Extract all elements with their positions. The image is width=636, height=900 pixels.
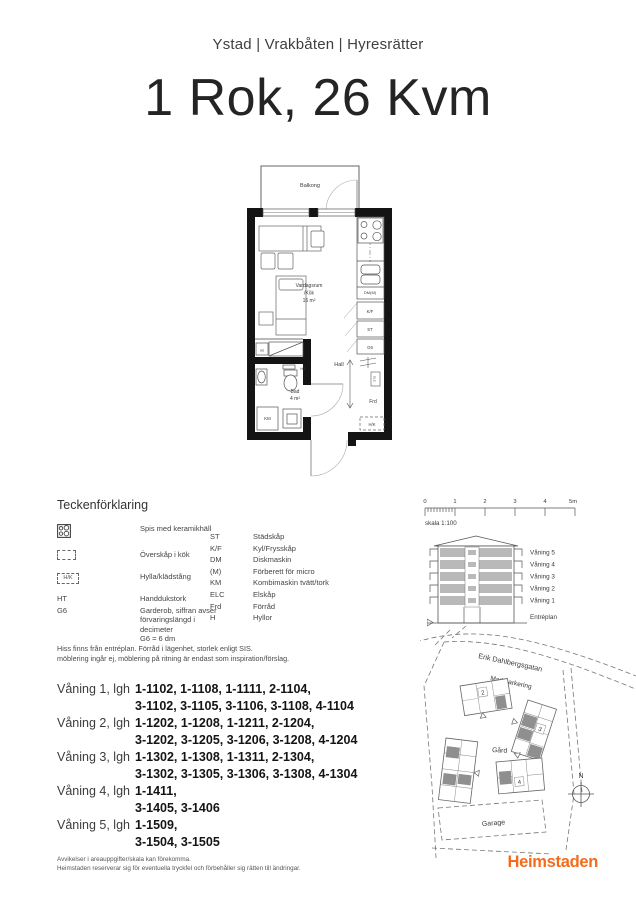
compass: N (568, 773, 594, 807)
legend-title: Teckenförklaring (57, 498, 148, 512)
bathroom-door-arc (311, 384, 343, 416)
legend-item-label: Spis med keramikhäll (140, 524, 211, 534)
balcony-label: Balkong (300, 183, 320, 189)
legend-item: H/K Hylla/klädstång (57, 572, 217, 584)
legend-abbr: DM (210, 554, 253, 566)
entry-door-arc (311, 440, 347, 476)
building-elevation: Våning 5 Våning 4 Våning 3 Våning 2 Våni… (427, 531, 597, 633)
legend-item: DMDiskmaskin (210, 554, 329, 566)
elevation-floor-label: Våning 2 (530, 585, 555, 593)
note-line: Hiss finns från entréplan. Förråd i läge… (57, 644, 289, 654)
legend-item: K/FKyl/Frysskåp (210, 543, 329, 555)
legend-item-label: Garderob, siffran avser förvaringslängd … (140, 606, 217, 644)
legend-item: HT Handdukstork (57, 594, 217, 604)
legend-abbr: G6 (57, 606, 140, 615)
legend-abbr: ELC (210, 589, 253, 601)
legend-item-label: Hylla/klädstång (140, 572, 191, 582)
hall-label: Hall (334, 362, 343, 368)
apartment-numbers: 3-1302, 3-1305, 3-1306, 3-1308, 4-1304 (135, 767, 357, 781)
floor-plan-drawing: Balkong (247, 162, 392, 484)
stove-icon (57, 524, 71, 538)
page-title: 1 Rok, 26 Kvm (0, 68, 636, 128)
hall-cabinets (344, 302, 384, 354)
apartment-numbers: 1-1509, (135, 818, 177, 832)
legend-item: KMKombimaskin tvätt/tork (210, 577, 329, 589)
apartment-numbers: 1-1302, 1-1308, 1-1311, 2-1304, (135, 750, 314, 764)
dishwasher-label: DM(M) (364, 290, 377, 295)
washer-label: KM (264, 416, 271, 421)
legend-item: HHyllor (210, 612, 329, 624)
floorplan-document: Ystad | Vrakbåten | Hyresrätter 1 Rok, 2… (0, 0, 636, 900)
floor-row: Våning 5, lgh 1-1509,3-1504, 3-1505 (57, 817, 357, 851)
disclaimer-line: Avvikelser i areauppgifter/skala kan för… (57, 856, 301, 865)
legend-abbr: (M) (210, 566, 253, 578)
heimstaden-logo: Heimstaden (507, 853, 598, 872)
kitchen-label: /Kök (304, 291, 315, 297)
apartment-numbers: 3-1504, 3-1505 (135, 835, 220, 849)
bathroom-area-label: 4 m² (290, 396, 300, 402)
notes: Hiss finns från entréplan. Förråd i läge… (57, 644, 289, 663)
legend-item: Spis med keramikhäll (57, 524, 217, 540)
scale-ruler (425, 508, 575, 516)
balcony-door-arc (326, 180, 357, 211)
shelf-label: H (260, 348, 263, 353)
legend-abbr: KM (210, 577, 253, 589)
legend-item: FrdFörråd (210, 601, 329, 613)
overhead-cabinet-icon (57, 550, 76, 560)
elevation-floor-label: Våning 5 (530, 549, 555, 557)
floor-row: Våning 2, lgh 1-1202, 1-1208, 1-1211, 2-… (57, 715, 357, 749)
apartment-numbers: 3-1202, 3-1205, 3-1206, 3-1208, 4-1204 (135, 733, 357, 747)
footer-disclaimer: Avvikelser i areauppgifter/skala kan för… (57, 856, 301, 873)
disclaimer-line: Heimstaden reserverar sig för eventuella… (57, 865, 301, 874)
bathroom-label: Bad (291, 389, 300, 395)
cleaning-cab-label: ST (367, 327, 373, 332)
legend-item-label: Handdukstork (140, 594, 186, 604)
legend-item: G6 Garderob, siffran avser förvaringslän… (57, 606, 217, 644)
fridge-label: K/F (367, 309, 374, 314)
legend-item: STStädskåp (210, 531, 329, 543)
scale-tick-label: 1 (453, 499, 456, 505)
legend-left-column: Spis med keramikhäll Överskåp i kök H/K … (57, 524, 217, 654)
scale-tick-label: 0 (423, 499, 426, 505)
legend-item-label: Elskåp (253, 589, 276, 601)
street-label: Erik Dahlbergsgatan (478, 651, 544, 673)
floor-label: Våning 5, lgh (57, 817, 135, 851)
towel-rack-label: HT (300, 366, 306, 371)
yard-label: Gård (492, 746, 508, 755)
floor-label: Våning 2, lgh (57, 715, 135, 749)
livingroom-label: Vardagsrum (296, 283, 323, 289)
apartment-numbers: 1-1411, (135, 784, 177, 798)
floor-row: Våning 1, lgh 1-1102, 1-1108, 1-1111, 2-… (57, 681, 357, 715)
dining-table (259, 226, 324, 269)
breadcrumb: Ystad | Vrakbåten | Hyresrätter (0, 36, 636, 53)
floor-label: Våning 3, lgh (57, 749, 135, 783)
elevation-floor-label: Entréplan (530, 614, 557, 621)
legend-right-column: STStädskåp K/FKyl/Frysskåp DMDiskmaskin … (210, 531, 329, 624)
floor-label: Våning 1, lgh (57, 681, 135, 715)
legend-item-label: Kyl/Frysskåp (253, 543, 296, 555)
livingroom-area-label: 16 m² (303, 298, 316, 304)
frd-label: Frd (369, 399, 377, 405)
legend-item-label: Städskåp (253, 531, 284, 543)
legend-abbr: ST (210, 531, 253, 543)
legend-item-label: Diskmaskin (253, 554, 291, 566)
legend-item: (M)Förberett för micro (210, 566, 329, 578)
legend-abbr: K/F (210, 543, 253, 555)
note-line: möblering ingår ej, möblering på ritning… (57, 654, 289, 664)
elevation-floor-label: Våning 4 (530, 561, 555, 569)
legend-item: ELCElskåp (210, 589, 329, 601)
scale-tick-label: 5m (569, 499, 577, 505)
site-building-2: 2 (460, 678, 513, 720)
compass-north-label: N (578, 773, 583, 780)
apartment-list: Våning 1, lgh 1-1102, 1-1108, 1-1111, 2-… (57, 681, 357, 851)
hk-label: H/K (369, 422, 376, 427)
legend-abbr: H (210, 612, 253, 624)
floor-row: Våning 3, lgh 1-1302, 1-1308, 1-1311, 2-… (57, 749, 357, 783)
shelf-rail-icon: H/K (57, 573, 79, 584)
legend-item-label: Kombimaskin tvätt/tork (253, 577, 329, 589)
scale-bar: 0 1 2 3 4 5m skala 1:100 (422, 496, 582, 528)
scale-tick-label: 3 (513, 499, 516, 505)
legend-item-label: Förråd (253, 601, 275, 613)
apartment-numbers: 3-1405, 3-1406 (135, 801, 220, 815)
legend-item-label: Överskåp i kök (140, 550, 190, 560)
scale-tick-label: 4 (543, 499, 547, 505)
apartment-numbers: 1-1202, 1-1208, 1-1211, 2-1204, (135, 716, 314, 730)
scale-caption: skala 1:100 (425, 520, 457, 527)
legend-abbr: Frd (210, 601, 253, 613)
legend-abbr: HT (57, 594, 140, 603)
legend-item: Överskåp i kök (57, 550, 217, 562)
elc-label: ELC (373, 376, 377, 383)
kitchen-counter (357, 217, 384, 299)
site-map: Erik Dahlbergsgatan Markparkering Gård G… (420, 626, 636, 862)
legend-item-label: Förberett för micro (253, 566, 315, 578)
wardrobe-label: G6 (367, 345, 373, 350)
garage-label: Garage (482, 819, 506, 828)
apartment-numbers: 3-1102, 3-1105, 3-1106, 3-1108, 4-1104 (135, 699, 354, 713)
site-building-1 (438, 738, 482, 804)
floor-label: Våning 4, lgh (57, 783, 135, 817)
legend-item-label: Hyllor (253, 612, 272, 624)
elevation-floor-label: Våning 3 (530, 573, 555, 581)
elevation-floor-label: Våning 1 (530, 597, 555, 605)
apartment-numbers: 1-1102, 1-1108, 1-1111, 2-1104, (135, 682, 311, 696)
floor-row: Våning 4, lgh 1-1411,3-1405, 3-1406 (57, 783, 357, 817)
scale-tick-label: 2 (483, 499, 486, 505)
